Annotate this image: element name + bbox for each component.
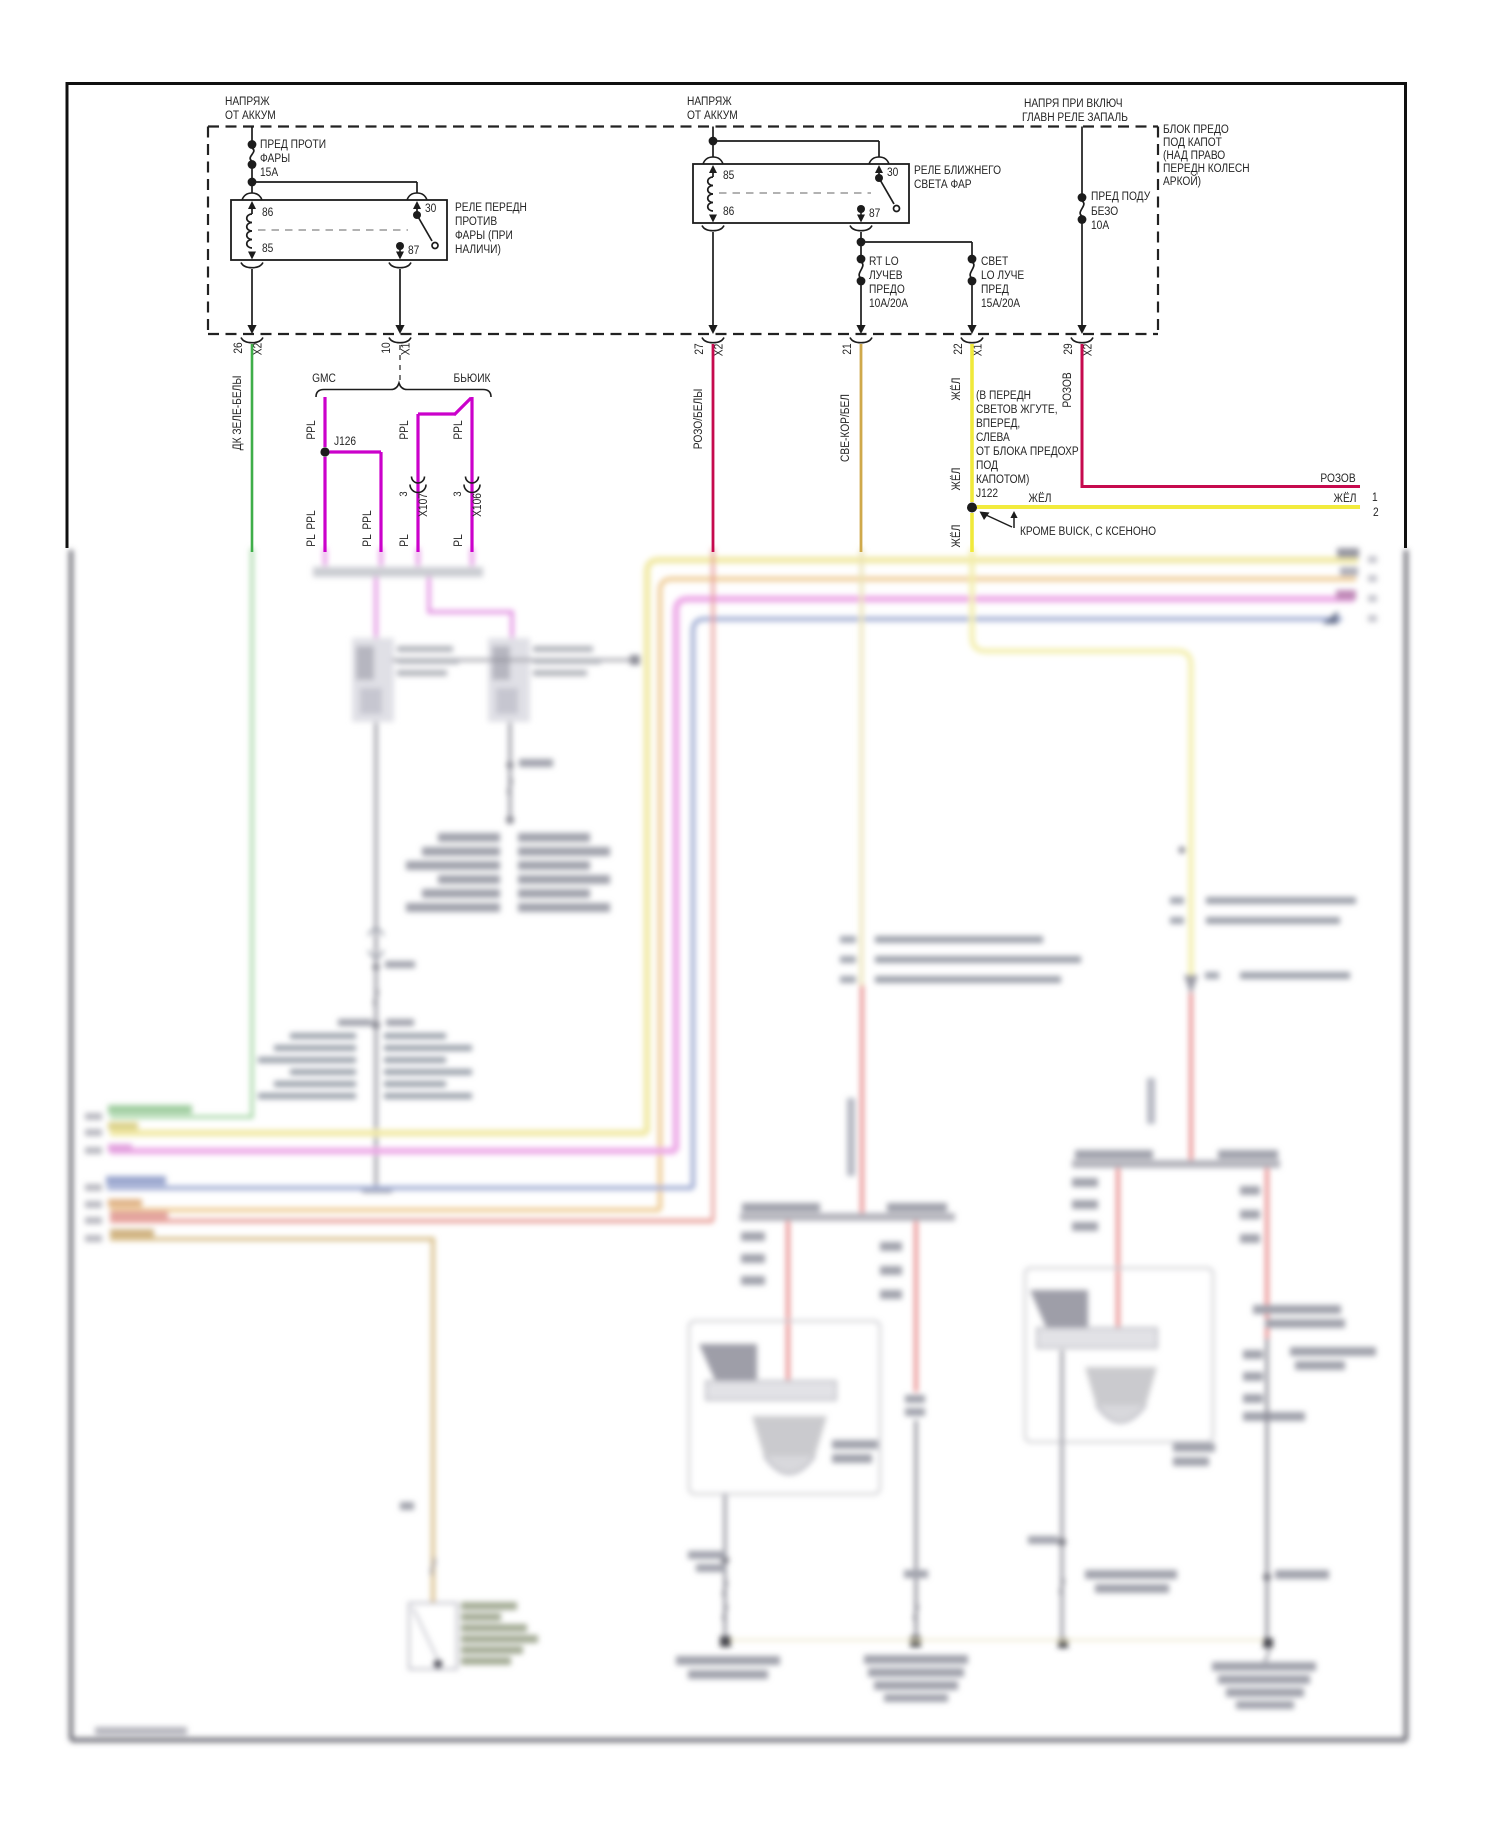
svg-text:X2: X2 xyxy=(1082,344,1095,356)
svg-text:БЬЮИК: БЬЮИК xyxy=(454,372,491,385)
svg-text:БЕЗО: БЕЗО xyxy=(1091,205,1119,218)
svg-text:АРКОЙ): АРКОЙ) xyxy=(1163,174,1201,188)
svg-text:10: 10 xyxy=(380,342,393,353)
svg-text:21: 21 xyxy=(841,343,854,354)
svg-text:(НАД ПРАВО: (НАД ПРАВО xyxy=(1163,149,1226,162)
svg-text:X107: X107 xyxy=(417,493,430,517)
svg-text:27: 27 xyxy=(693,343,706,354)
svg-text:ЖЁЛ: ЖЁЛ xyxy=(1334,492,1357,505)
svg-text:ПРЕД ПРОТИ: ПРЕД ПРОТИ xyxy=(260,138,326,151)
svg-text:ПРЕД ПОДУ: ПРЕД ПОДУ xyxy=(1091,190,1151,203)
svg-text:85: 85 xyxy=(262,242,273,255)
svg-text:ЖЁЛ: ЖЁЛ xyxy=(950,378,963,401)
svg-text:ДК ЗЕЛЕ-БЕЛЫ: ДК ЗЕЛЕ-БЕЛЫ xyxy=(231,376,244,451)
svg-text:87: 87 xyxy=(869,207,880,220)
svg-text:X106: X106 xyxy=(471,493,484,517)
svg-text:ЖЁЛ: ЖЁЛ xyxy=(950,468,963,491)
svg-text:PPL: PPL xyxy=(452,420,465,439)
svg-text:22: 22 xyxy=(952,343,965,354)
svg-text:87: 87 xyxy=(408,244,419,257)
svg-text:J122: J122 xyxy=(976,487,998,500)
svg-text:РЕЛЕ БЛИЖНЕГО: РЕЛЕ БЛИЖНЕГО xyxy=(914,164,1001,177)
svg-text:15А: 15А xyxy=(260,166,279,179)
svg-text:ПРЕДО: ПРЕДО xyxy=(869,283,905,296)
svg-text:86: 86 xyxy=(723,205,734,218)
svg-text:НАЛИЧИ): НАЛИЧИ) xyxy=(455,243,501,256)
svg-text:PL: PL xyxy=(452,534,465,546)
svg-text:РЕЛЕ ПЕРЕДН: РЕЛЕ ПЕРЕДН xyxy=(455,201,527,214)
svg-text:30: 30 xyxy=(887,166,898,179)
svg-text:СВЕТ: СВЕТ xyxy=(981,255,1008,268)
svg-text:ОТ АККУМ: ОТ АККУМ xyxy=(225,109,276,122)
svg-text:PPL: PPL xyxy=(398,420,411,439)
svg-text:ВПЕРЕД,: ВПЕРЕД, xyxy=(976,417,1020,430)
svg-text:ЖЁЛ: ЖЁЛ xyxy=(950,525,963,548)
svg-text:НАПРЯЖ: НАПРЯЖ xyxy=(687,95,732,108)
svg-text:СВЕ-КОР/БЕЛ: СВЕ-КОР/БЕЛ xyxy=(839,394,852,462)
svg-text:СЛЕВА: СЛЕВА xyxy=(976,431,1010,444)
svg-text:РОЗОВ: РОЗОВ xyxy=(1320,472,1355,485)
svg-text:15А/20А: 15А/20А xyxy=(981,297,1021,310)
svg-text:26: 26 xyxy=(232,342,245,353)
svg-text:ПОД КАПОТ: ПОД КАПОТ xyxy=(1163,136,1222,149)
svg-text:X2: X2 xyxy=(713,344,726,356)
svg-text:PPL: PPL xyxy=(361,510,374,529)
svg-text:3: 3 xyxy=(452,491,464,496)
svg-text:10А/20А: 10А/20А xyxy=(869,297,909,310)
svg-text:RT LO: RT LO xyxy=(869,255,899,268)
svg-text:3: 3 xyxy=(398,491,410,496)
svg-text:(В ПЕРЕДН: (В ПЕРЕДН xyxy=(976,389,1031,402)
svg-text:РОЗОВ: РОЗОВ xyxy=(1061,372,1074,407)
svg-text:ГЛАВН РЕЛЕ ЗАПАЛЬ: ГЛАВН РЕЛЕ ЗАПАЛЬ xyxy=(1022,111,1128,124)
svg-text:СВЕТА ФАР: СВЕТА ФАР xyxy=(914,178,972,191)
svg-text:PL: PL xyxy=(361,534,374,546)
svg-text:29: 29 xyxy=(1062,343,1075,354)
svg-text:КАПОТОМ): КАПОТОМ) xyxy=(976,473,1030,486)
svg-text:ПРОТИВ: ПРОТИВ xyxy=(455,215,497,228)
svg-text:30: 30 xyxy=(425,202,436,215)
svg-text:1: 1 xyxy=(1372,491,1378,504)
svg-text:PPL: PPL xyxy=(305,510,318,529)
svg-text:10А: 10А xyxy=(1091,219,1110,232)
svg-text:X2: X2 xyxy=(252,343,265,355)
svg-text:ФАРЫ (ПРИ: ФАРЫ (ПРИ xyxy=(455,229,513,242)
svg-text:ФАРЫ: ФАРЫ xyxy=(260,152,290,165)
svg-text:ПЕРЕДН КОЛЕСН: ПЕРЕДН КОЛЕСН xyxy=(1163,162,1250,175)
svg-text:ЖЁЛ: ЖЁЛ xyxy=(1029,492,1052,505)
svg-text:ЛУЧЕВ: ЛУЧЕВ xyxy=(869,269,903,282)
svg-text:ОТ БЛОКА ПРЕДОХР: ОТ БЛОКА ПРЕДОХР xyxy=(976,445,1079,458)
svg-text:J126: J126 xyxy=(334,435,356,448)
svg-text:86: 86 xyxy=(262,206,273,219)
svg-text:РОЗО/БЕЛЫ: РОЗО/БЕЛЫ xyxy=(692,389,705,449)
svg-text:НАПРЯ ПРИ ВКЛЮЧ: НАПРЯ ПРИ ВКЛЮЧ xyxy=(1024,97,1123,110)
svg-text:LO ЛУЧЕ: LO ЛУЧЕ xyxy=(981,269,1024,282)
svg-text:БЛОК ПРЕДО: БЛОК ПРЕДО xyxy=(1163,123,1229,136)
svg-text:PL: PL xyxy=(305,534,318,546)
svg-text:85: 85 xyxy=(723,169,734,182)
svg-text:ПОД: ПОД xyxy=(976,459,998,472)
svg-text:X1: X1 xyxy=(400,343,413,355)
svg-text:GMC: GMC xyxy=(312,372,336,385)
svg-text:КРОМЕ BUICK, С КСЕНОНО: КРОМЕ BUICK, С КСЕНОНО xyxy=(1020,525,1156,538)
svg-text:ОТ АККУМ: ОТ АККУМ xyxy=(687,109,738,122)
svg-text:2: 2 xyxy=(1373,506,1379,519)
svg-text:PPL: PPL xyxy=(305,420,318,439)
svg-text:PL: PL xyxy=(398,534,411,546)
svg-text:СВЕТОВ ЖГУТЕ,: СВЕТОВ ЖГУТЕ, xyxy=(976,403,1058,416)
svg-text:НАПРЯЖ: НАПРЯЖ xyxy=(225,95,270,108)
svg-text:ПРЕД: ПРЕД xyxy=(981,283,1009,296)
